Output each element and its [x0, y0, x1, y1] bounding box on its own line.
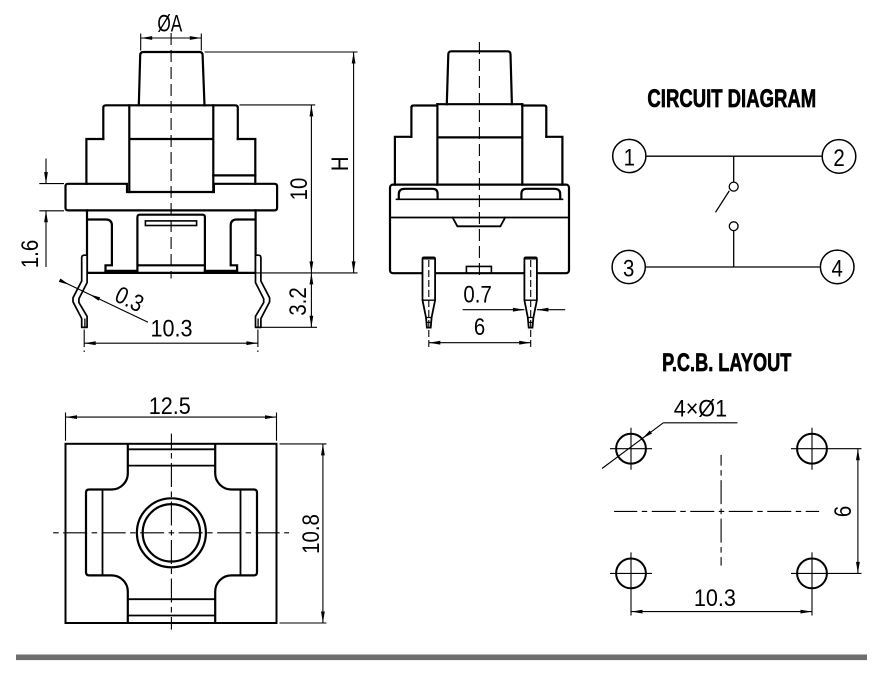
svg-text:10.3: 10.3	[150, 314, 192, 341]
svg-text:6: 6	[474, 313, 485, 340]
svg-text:10: 10	[285, 178, 312, 201]
svg-text:CIRCUIT DIAGRAM: CIRCUIT DIAGRAM	[647, 84, 816, 112]
svg-text:4: 4	[832, 255, 843, 282]
svg-text:10.8: 10.8	[297, 514, 324, 554]
svg-text:12.5: 12.5	[149, 392, 191, 419]
svg-text:3.2: 3.2	[284, 287, 311, 315]
svg-text:P.C.B. LAYOUT: P.C.B. LAYOUT	[662, 348, 792, 377]
svg-text:1.6: 1.6	[17, 240, 44, 268]
svg-text:4×Ø1: 4×Ø1	[674, 394, 727, 421]
svg-text:0.7: 0.7	[463, 281, 491, 308]
svg-text:ØA: ØA	[157, 11, 182, 37]
svg-text:3: 3	[623, 255, 634, 282]
svg-text:2: 2	[833, 144, 844, 171]
svg-text:10.3: 10.3	[694, 584, 736, 611]
svg-text:H: H	[326, 156, 353, 171]
svg-text:1: 1	[624, 144, 635, 171]
svg-text:6: 6	[829, 506, 856, 517]
